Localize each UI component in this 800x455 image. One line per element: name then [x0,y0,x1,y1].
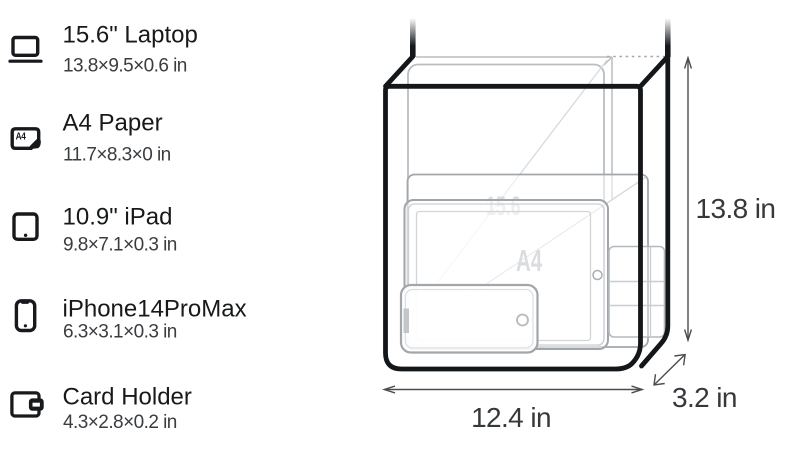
svg-text:A4: A4 [516,243,542,278]
svg-text:11.7×8.3×0 in: 11.7×8.3×0 in [63,145,171,166]
svg-text:13.8×9.5×0.6 in: 13.8×9.5×0.6 in [63,56,187,77]
svg-text:A4: A4 [16,131,26,142]
svg-text:9.8×7.1×0.3 in: 9.8×7.1×0.3 in [63,235,177,256]
svg-text:iPhone14ProMax: iPhone14ProMax [63,296,247,323]
svg-text:Card Holder: Card Holder [63,384,192,411]
svg-text:4.3×2.8×0.2 in: 4.3×2.8×0.2 in [63,412,177,433]
svg-text:A4 Paper: A4 Paper [63,110,163,137]
svg-text:12.4 in: 12.4 in [471,402,551,433]
svg-text:15.6" Laptop: 15.6" Laptop [63,22,198,49]
svg-text:6.3×3.1×0.3 in: 6.3×3.1×0.3 in [63,322,177,343]
svg-text:10.9" iPad: 10.9" iPad [63,204,173,231]
svg-text:13.8 in: 13.8 in [696,193,776,224]
svg-text:3.2 in: 3.2 in [672,382,737,413]
